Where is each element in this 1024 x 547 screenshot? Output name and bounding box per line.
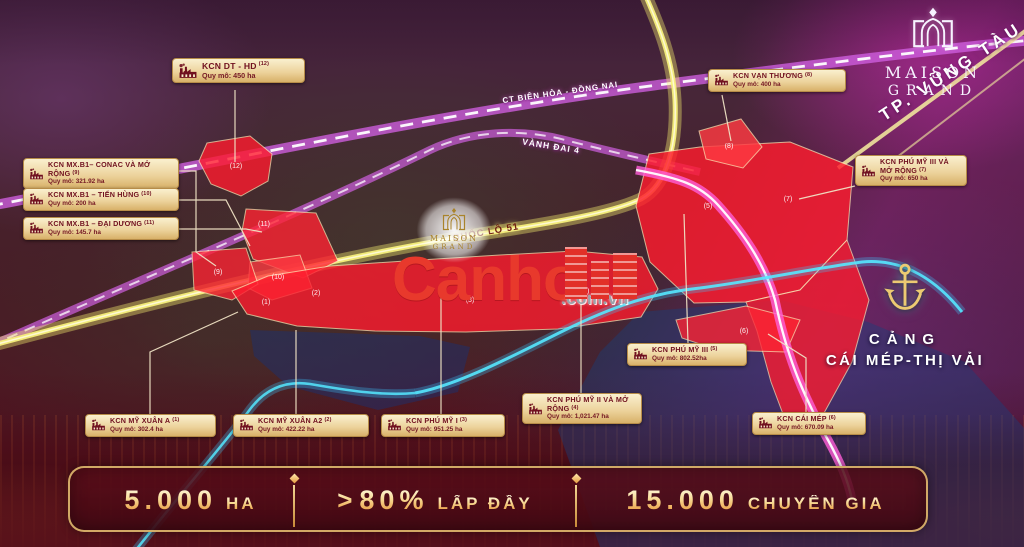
park-name: KCN MỸ XUÂN A [110,416,170,425]
park-area: Quy mô: 200 ha [48,200,152,208]
park-label-kcn-phu-my-3: KCN PHÚ MỸ III(5) Quy mô: 802.52ha [627,343,747,366]
factory-icon [29,193,44,205]
divider-line [575,485,577,527]
park-label-kcn-cai-mep: KCN CÁI MÉP(6) Quy mô: 670.09 ha [752,412,866,435]
zone-number-9: (9) [214,269,223,276]
maison-grand-emblem-icon [439,207,469,235]
factory-icon [633,348,648,360]
stat-divider [289,475,299,527]
park-label-kcn-my-xuan-a: KCN MỸ XUÂN A(1) Quy mô: 302.4 ha [85,414,216,437]
park-number: (5) [710,346,717,352]
zone-number-3: (3) [466,297,475,304]
maison-grand-logo: MAISON GRAND [858,6,1008,99]
zone-number-7: (7) [784,196,793,203]
stat-value: 15.000 [626,487,739,514]
zone-number-6: (6) [740,328,749,335]
stat-experts: 15.000 CHUYÊN GIA [598,468,913,530]
park-label-kcn-mxb1-dai-duong: KCN MX.B1 – ĐẠI DƯƠNG(11) Quy mô: 145.7 … [23,217,179,240]
factory-icon [714,74,729,86]
stat-value: 5.000 [124,487,217,514]
maison-grand-location-map: (12) (11) (10) (9) (1) (2) (3) (4) (5) (… [0,0,1024,547]
park-label-kcn-van-thuong: KCN VẠN THƯƠNG(8) Quy mô: 400 ha [708,69,846,92]
park-label-kcn-dt-hd: KCN DT - HD(12) Quy mô: 450 ha [172,58,305,83]
park-area: Quy mô: 422.22 ha [258,426,332,434]
diamond-ornament-icon [571,474,581,484]
park-label-kcn-mxb1-conac: KCN MX.B1– CONAC VÀ MỞ RỘNG(9) Quy mô: 3… [23,158,179,189]
park-number: (10) [141,191,151,197]
stat-unit: HA [226,495,257,512]
park-area: Quy mô: 1,021.47 ha [547,413,636,421]
park-number: (8) [805,72,812,78]
logo-text-maison: MAISON [858,63,1008,82]
park-name: KCN DT - HD [202,61,257,71]
park-number: (9) [72,170,79,176]
factory-icon [178,63,198,79]
zone-number-10: (10) [272,274,284,281]
zone-number-12: (12) [230,163,242,170]
logo-text-grand: GRAND [858,83,1008,99]
factory-icon [91,419,106,431]
factory-icon [758,417,773,429]
park-label-kcn-phu-my-2-mo-rong: KCN PHÚ MỸ II VÀ MỞ RỘNG(4) Quy mô: 1,02… [522,393,642,424]
port-name: CÁI MÉP-THỊ VẢI [800,352,1010,369]
diamond-ornament-icon [289,474,299,484]
park-number: (2) [324,417,331,423]
park-area: Quy mô: 145.7 ha [48,229,154,237]
park-number: (4) [571,405,578,411]
park-name: KCN PHÚ MỸ I [406,416,458,425]
park-number: (12) [259,61,269,67]
park-area: Quy mô: 951.25 ha [406,426,467,434]
park-area: Quy mô: 302.4 ha [110,426,179,434]
factory-icon [29,222,44,234]
divider-line [293,485,295,527]
park-name: KCN MỸ XUÂN A2 [258,416,322,425]
park-name: KCN MX.B1 – ĐẠI DƯƠNG [48,219,142,228]
stat-total-area: 5.000 HA [98,468,283,530]
park-name: KCN MX.B1– CONAC VÀ MỞ RỘNG [48,160,150,178]
zone-number-2: (2) [312,290,321,297]
factory-icon [387,419,402,431]
zone-number-1: (1) [262,299,271,306]
factory-icon [861,165,876,177]
park-area: Quy mô: 650 ha [880,175,961,183]
zone-number-5: (5) [704,203,713,210]
park-area: Quy mô: 321.92 ha [48,178,173,186]
project-location-marker: MAISON GRAND [406,188,502,272]
park-name: KCN MX.B1 – TIẾN HÙNG [48,190,139,199]
park-label-kcn-phu-my-1: KCN PHÚ MỸ I(3) Quy mô: 951.25 ha [381,414,505,437]
park-label-kcn-phu-my-3-mo-rong: KCN PHÚ MỸ III VÀ MỞ RỘNG(7) Quy mô: 650… [855,155,967,186]
zone-number-8: (8) [725,143,734,150]
marker-text-maison: MAISON [430,235,478,243]
zone-number-11: (11) [258,221,270,228]
park-number: (7) [919,167,926,173]
park-number: (6) [829,415,836,421]
greater-than-icon: > [337,487,352,513]
park-label-kcn-my-xuan-a2: KCN MỸ XUÂN A2(2) Quy mô: 422.22 ha [233,414,369,437]
park-number: (11) [144,220,154,226]
zone-number-4: (4) [581,288,590,295]
park-area: Quy mô: 400 ha [733,81,812,89]
park-name: KCN CÁI MÉP [777,414,827,423]
park-number: (3) [460,417,467,423]
port-title: CẢNG [800,331,1010,348]
park-area: Quy mô: 450 ha [202,71,269,80]
park-name: KCN VẠN THƯƠNG [733,71,803,80]
stat-unit: CHUYÊN GIA [748,495,885,512]
factory-icon [239,419,254,431]
stat-occupancy: > 80% LẤP ĐẦY [316,468,554,530]
anchor-icon [884,262,926,312]
stat-value: 80% [359,487,428,514]
park-name: KCN PHÚ MỸ III VÀ MỞ RỘNG [880,157,949,175]
factory-icon [29,168,44,180]
maison-grand-emblem-icon [906,6,960,56]
stat-unit: LẤP ĐẦY [437,495,532,512]
park-number: (1) [172,417,179,423]
park-area: Quy mô: 670.09 ha [777,424,836,432]
park-name: KCN PHÚ MỸ II VÀ MỞ RỘNG [547,395,628,413]
stats-bar: 5.000 HA > 80% LẤP ĐẦY 15.000 CHUYÊN GIA [68,466,928,532]
park-area: Quy mô: 802.52ha [652,355,718,363]
park-label-kcn-mxb1-tien-hung: KCN MX.B1 – TIẾN HÙNG(10) Quy mô: 200 ha [23,188,179,211]
park-name: KCN PHÚ MỸ III [652,345,708,354]
factory-icon [528,403,543,415]
stat-divider [571,475,581,527]
marker-text-grand: GRAND [433,243,476,252]
port-cai-mep-thi-vai: CẢNG CÁI MÉP-THỊ VẢI [800,262,1010,369]
